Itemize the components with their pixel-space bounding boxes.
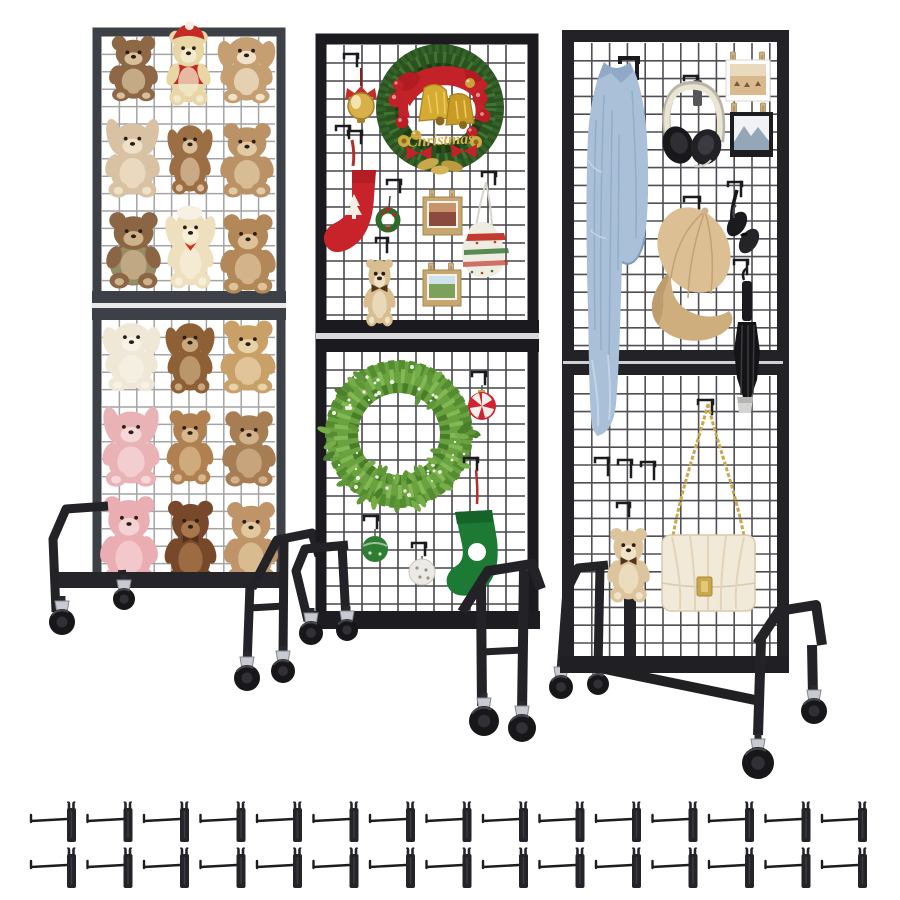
svg-text:Christmas: Christmas [407, 130, 475, 151]
